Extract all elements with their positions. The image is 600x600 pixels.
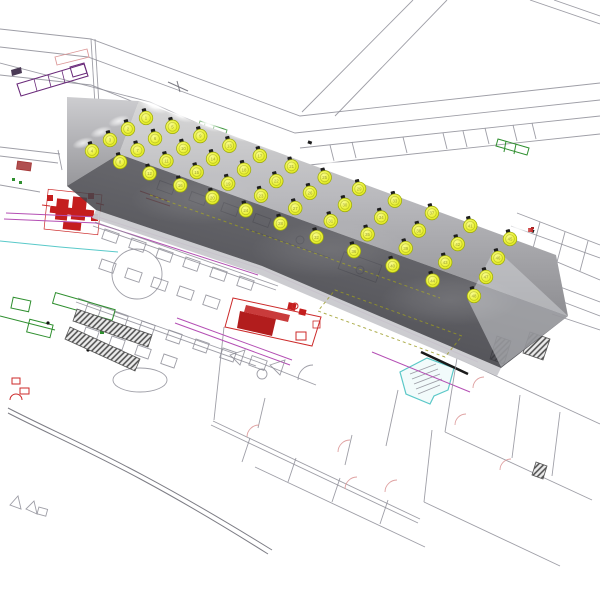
corridor-partitions [330, 123, 536, 161]
luminaire-label: 17 [257, 154, 262, 159]
luminaire-label: 11 [164, 159, 169, 164]
luminaire-label: 23 [259, 193, 264, 198]
luminaire-label: 47 [484, 275, 489, 280]
luminaire-label: 12 [147, 171, 152, 176]
luminaire-label: 32 [314, 235, 319, 240]
luminaire-label: 34 [379, 215, 384, 220]
luminaire-label: 22 [274, 179, 279, 184]
luminaire-label: 38 [416, 228, 421, 233]
scene-svg: 1234567891011121314151617181920212223242… [0, 0, 600, 600]
luminaire-label: 31 [328, 219, 333, 224]
tables-shapes [230, 350, 313, 380]
hatched-gratings [65, 309, 152, 371]
luminaire-label: 35 [365, 232, 370, 237]
luminaire-label: 19 [226, 181, 231, 186]
luminaire-label: 14 [211, 157, 216, 162]
luminaire-label: 45 [508, 237, 513, 242]
luminaire-label: 24 [243, 208, 248, 213]
left-rooms [0, 147, 62, 192]
luminaire-label: 15 [194, 170, 199, 175]
luminaire-label: 37 [430, 211, 435, 216]
luminaire-label: 18 [242, 167, 247, 172]
luminaire-label: 20 [210, 195, 215, 200]
luminaire-label: 10 [181, 146, 186, 151]
staircase-cyan [372, 352, 470, 404]
bottom-rooms [211, 390, 425, 547]
luminaire-label: 29 [357, 187, 362, 192]
luminaire-label: 16 [178, 183, 183, 188]
red-details-bottomleft [10, 378, 29, 400]
luminaire-label: 21 [289, 164, 294, 169]
luminaire-label: 25 [322, 175, 327, 180]
red-machinery-room [225, 298, 321, 346]
small-plan-shapes [10, 496, 48, 516]
luminaire-label: 27 [293, 206, 298, 211]
luminaire-label: 48 [472, 294, 477, 299]
luminaire-label: 28 [278, 221, 283, 226]
luminaire-label: 43 [443, 260, 448, 265]
luminaire-label: 33 [392, 198, 397, 203]
luminaire-label: 44 [430, 278, 435, 283]
luminaire-label: 26 [308, 190, 313, 195]
luminaire-label: 42 [455, 242, 460, 247]
luminaire-label: 30 [343, 203, 348, 208]
luminaire-label: 13 [227, 143, 232, 148]
luminaire-label: 46 [496, 256, 501, 261]
luminaire-label: 41 [468, 224, 473, 229]
door-swing-circle [112, 249, 162, 299]
luminaire-label: 36 [352, 249, 357, 254]
lighting-scene-viewport[interactable]: 1234567891011121314151617181920212223242… [0, 0, 600, 600]
luminaire-label: 39 [403, 246, 408, 251]
luminaire-label: 40 [390, 263, 395, 268]
